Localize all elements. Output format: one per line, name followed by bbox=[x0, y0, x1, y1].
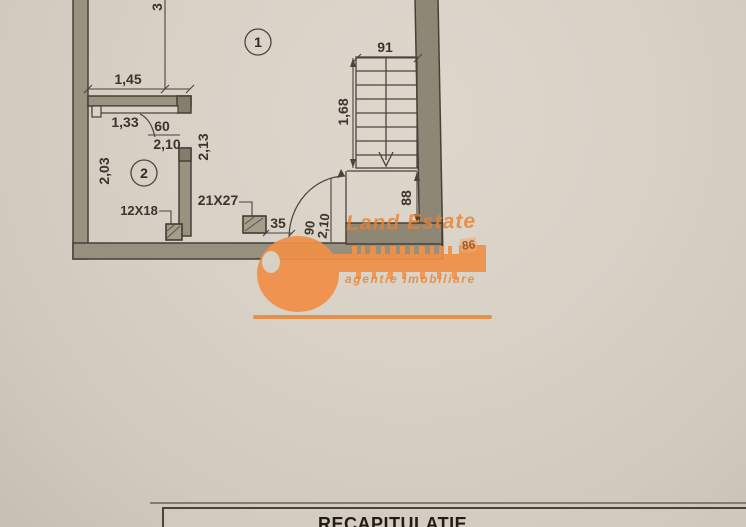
watermark-underline bbox=[253, 315, 492, 319]
recap-outer-line bbox=[150, 502, 746, 504]
watermark-key bbox=[0, 0, 746, 527]
key-teeth bbox=[352, 246, 452, 255]
scanned-floorplan-page: 1 2 3 1,45 1,33 60 2,10 2,13 2,03 12X18 … bbox=[0, 0, 746, 527]
brand-name: Land Estate bbox=[346, 208, 566, 236]
brand-tagline: agentie imobiliare bbox=[345, 272, 476, 286]
key-bow-hole bbox=[262, 251, 280, 273]
key-badge: 86 bbox=[459, 237, 478, 253]
recap-title: RECAPITULATIE bbox=[318, 514, 467, 527]
